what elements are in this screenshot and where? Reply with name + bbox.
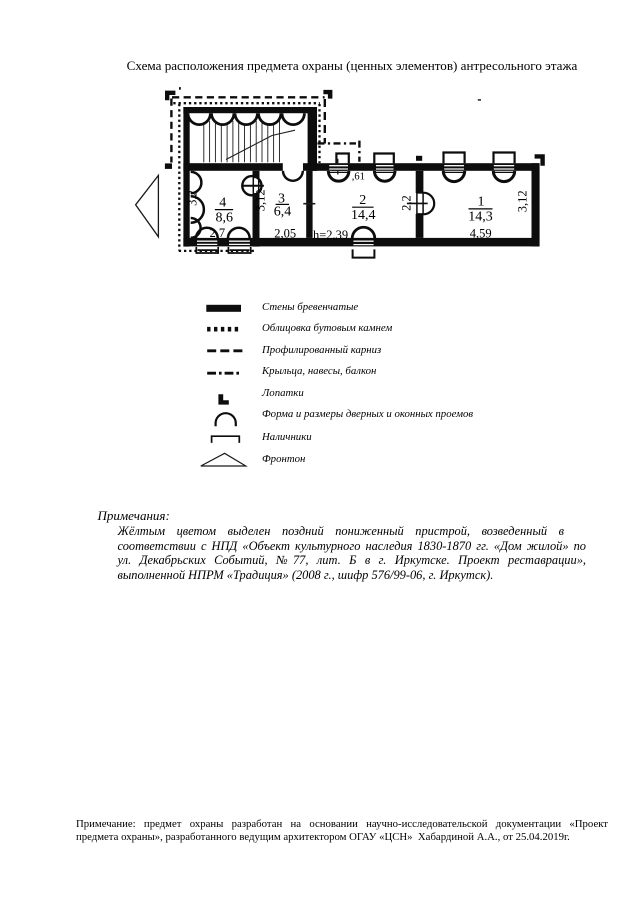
svg-text:4,59: 4,59: [470, 227, 492, 241]
svg-text:h=2,39: h=2,39: [313, 228, 348, 242]
svg-text:1: 1: [478, 195, 485, 210]
svg-text:6,4: 6,4: [274, 205, 292, 220]
svg-text:2,05: 2,05: [274, 227, 296, 241]
svg-text:3,2: 3,2: [186, 190, 200, 206]
svg-text:3,12: 3,12: [254, 189, 268, 211]
svg-text:14,4: 14,4: [351, 208, 376, 223]
svg-text:,61: ,61: [352, 171, 365, 182]
svg-text:4: 4: [219, 195, 226, 210]
svg-text:2,2: 2,2: [400, 195, 414, 211]
svg-text:14,3: 14,3: [468, 210, 493, 225]
svg-text:2,7: 2,7: [209, 226, 225, 240]
svg-text:3,12: 3,12: [516, 190, 530, 212]
svg-text:8,6: 8,6: [216, 211, 234, 226]
svg-text:2: 2: [359, 193, 366, 208]
